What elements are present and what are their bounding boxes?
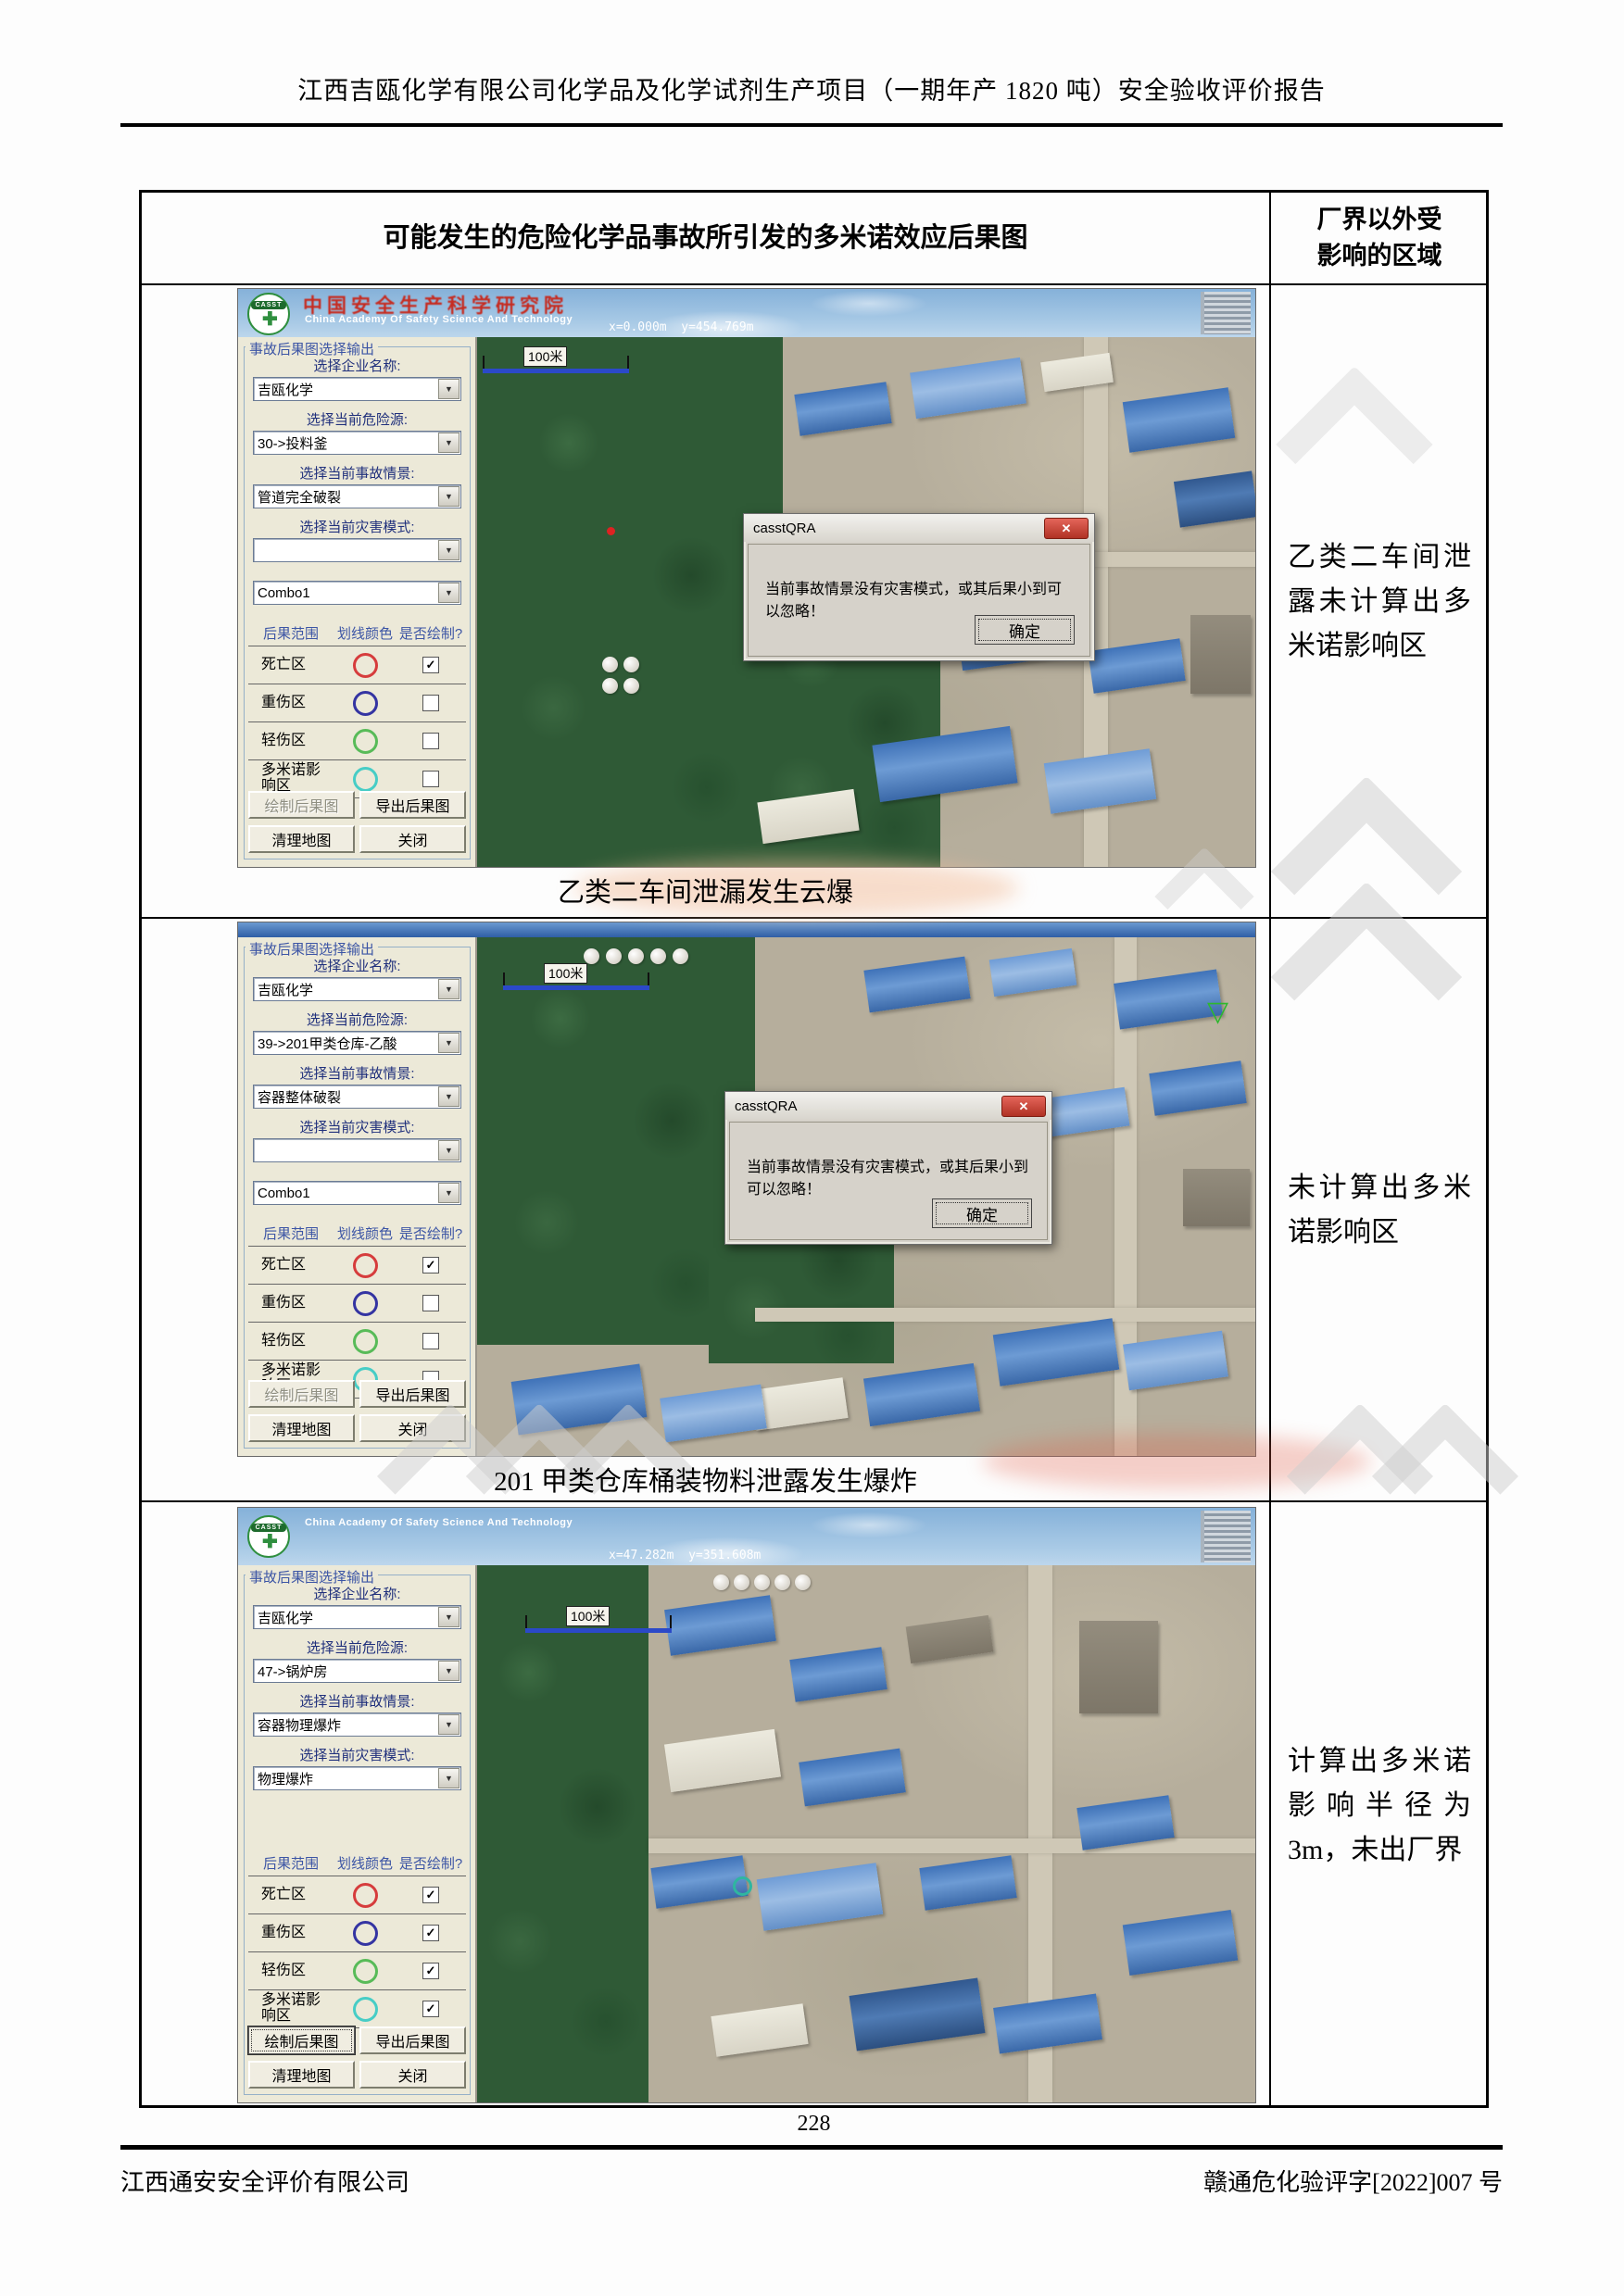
dialog-ok-button[interactable]: 确定	[932, 1198, 1032, 1228]
table-row-divider	[139, 917, 1489, 919]
zone-draw-checkbox[interactable]	[422, 695, 439, 711]
hazard-value: 30->投料釜	[254, 433, 437, 453]
disaster-mode-select[interactable]: ▼	[253, 1138, 461, 1162]
combo1-select[interactable]: Combo1 ▼	[253, 1181, 461, 1205]
zone-row-severe: 重伤区 ✓	[248, 1914, 466, 1952]
panel-group-title: 事故后果图选择输出	[245, 939, 378, 959]
zone-label: 多米诺影响区	[248, 1993, 334, 2025]
panel-group-frame: 事故后果图选择输出 选择企业名称: 吉瓯化学 ▼ 选择当前危险源: 30->投料…	[244, 346, 471, 859]
zone-row-severe: 重伤区	[248, 1285, 466, 1323]
zone-color-header: 划线颜色	[334, 1853, 397, 1873]
casst-logo-cross-icon: ✚	[262, 1533, 275, 1551]
dropdown-arrow-icon[interactable]: ▼	[438, 583, 460, 603]
export-result-button[interactable]: 导出后果图	[359, 2026, 466, 2054]
zone-color-ring	[353, 767, 378, 792]
zone-label: 重伤区	[248, 696, 334, 711]
dropdown-arrow-icon[interactable]: ▼	[438, 486, 460, 507]
affected-area-note-text: 计算出多米诺影响半径为3m，未出厂界	[1288, 1739, 1471, 1873]
dropdown-arrow-icon[interactable]: ▼	[438, 433, 460, 453]
zone-draw-checkbox[interactable]: ✓	[422, 1963, 439, 1979]
banner-org-name-en: China Academy Of Safety Science And Tech…	[305, 1517, 573, 1528]
hazard-label: 选择当前危险源:	[245, 1010, 470, 1029]
zone-color-ring	[353, 1959, 378, 1984]
scenario-value: 管道完全破裂	[254, 487, 437, 507]
zone-range-header: 后果范围	[248, 1853, 334, 1873]
table-row-divider	[139, 1500, 1489, 1502]
zone-color-ring	[353, 1253, 378, 1278]
enterprise-label: 选择企业名称:	[245, 956, 470, 975]
dropdown-arrow-icon[interactable]: ▼	[438, 540, 460, 560]
zone-table: 后果范围 划线颜色 是否绘制? 死亡区 ✓ 重伤区	[248, 620, 466, 798]
draw-result-button[interactable]: 绘制后果图	[248, 791, 355, 819]
affected-area-note-text: 未计算出多米诺影响区	[1288, 1166, 1471, 1255]
combo1-value: Combo1	[254, 1186, 437, 1201]
casst-logo-cross-icon: ✚	[262, 310, 275, 329]
scenario-value: 容器整体破裂	[254, 1087, 437, 1107]
hazard-value: 47->锅炉房	[254, 1662, 437, 1681]
scenario-select[interactable]: 容器整体破裂 ▼	[253, 1085, 461, 1109]
dialog-body: 当前事故情景没有灾害模式，或其后果小到可以忽略！ 确定	[748, 544, 1090, 657]
dialog-message: 当前事故情景没有灾害模式，或其后果小到可以忽略！	[749, 545, 1089, 621]
zone-color-ring	[353, 1291, 378, 1316]
output-selection-panel: 事故后果图选择输出 选择企业名称: 吉瓯化学 ▼ 选择当前危险源: 47->锅炉…	[238, 1565, 477, 2102]
zone-label: 轻伤区	[248, 1964, 334, 1979]
close-button[interactable]: 关闭	[359, 825, 466, 853]
table-header-consequence: 可能发生的危险化学品事故所引发的多米诺效应后果图	[142, 193, 1269, 283]
enterprise-select[interactable]: 吉瓯化学 ▼	[253, 977, 461, 1001]
hazard-select[interactable]: 47->锅炉房 ▼	[253, 1659, 461, 1683]
zone-draw-checkbox[interactable]: ✓	[422, 1887, 439, 1903]
zone-color-ring	[353, 653, 378, 678]
zone-color-ring	[353, 691, 378, 716]
dropdown-arrow-icon[interactable]: ▼	[438, 1183, 460, 1203]
zone-color-ring	[353, 1329, 378, 1354]
zone-draw-header: 是否绘制?	[397, 623, 465, 643]
page-number: 228	[139, 2112, 1489, 2137]
zone-label: 死亡区	[248, 1258, 334, 1273]
dropdown-arrow-icon[interactable]: ▼	[438, 1714, 460, 1735]
satellite-map-viewport[interactable]: 100米 casstQRA ✕ 当前事故情景没有灾害模式，或其后果小到可以忽略！…	[477, 337, 1255, 867]
map-scale-bar: 100米	[503, 963, 649, 990]
enterprise-select[interactable]: 吉瓯化学 ▼	[253, 1605, 461, 1629]
close-button[interactable]: 关闭	[359, 1414, 466, 1442]
figure-caption: 201 甲类仓库桶装物料泄露发生爆炸	[142, 1460, 1269, 1499]
zone-draw-checkbox[interactable]: ✓	[422, 2001, 439, 2017]
footer-rule	[120, 2145, 1503, 2150]
zone-draw-checkbox[interactable]	[422, 1333, 439, 1349]
panel-buttons: 绘制后果图 导出后果图 清理地图 关闭	[248, 791, 466, 853]
building-photo	[1201, 1511, 1251, 1562]
zone-label: 多米诺影响区	[248, 763, 334, 795]
scenario-select[interactable]: 容器物理爆炸 ▼	[253, 1713, 461, 1737]
zone-color-ring	[353, 1921, 378, 1946]
affected-area-note-text: 乙类二车间泄露未计算出多米诺影响区	[1288, 535, 1471, 669]
zone-draw-checkbox[interactable]: ✓	[422, 657, 439, 673]
dropdown-arrow-icon[interactable]: ▼	[438, 1607, 460, 1627]
zone-draw-header: 是否绘制?	[397, 1223, 465, 1243]
map-scale-label: 100米	[523, 346, 567, 367]
casst-logo-icon: CASST ✚	[247, 293, 290, 335]
zone-draw-checkbox[interactable]	[422, 733, 439, 749]
draw-result-button[interactable]: 绘制后果图	[248, 1380, 355, 1408]
enterprise-value: 吉瓯化学	[254, 380, 437, 399]
footer-company: 江西通安安全评价有限公司	[120, 2164, 409, 2198]
triangle-annotation: ▽	[1207, 998, 1228, 1026]
app-banner-strip	[238, 922, 1255, 937]
disaster-mode-select[interactable]: 物理爆炸 ▼	[253, 1766, 461, 1790]
zone-row-domino: 多米诺影响区 ✓	[248, 1990, 466, 2028]
dialog-close-button[interactable]: ✕	[1044, 518, 1089, 539]
hazard-point-marker	[607, 527, 615, 535]
table-header-affected-area: 厂界以外受影响的区域	[1273, 193, 1486, 283]
zone-color-ring	[353, 1883, 378, 1908]
zone-row-light: 轻伤区 ✓	[248, 1952, 466, 1990]
scenario-label: 选择当前事故情景:	[245, 1063, 470, 1083]
hazard-select[interactable]: 39->201甲类仓库-乙酸 ▼	[253, 1031, 461, 1055]
zone-row-severe: 重伤区	[248, 684, 466, 722]
zone-draw-checkbox[interactable]: ✓	[422, 1925, 439, 1941]
dialog-ok-button[interactable]: 确定	[975, 615, 1075, 645]
domino-radius-marker	[733, 1876, 752, 1896]
panel-group-frame: 事故后果图选择输出 选择企业名称: 吉瓯化学 ▼ 选择当前危险源: 47->锅炉…	[244, 1575, 471, 2095]
export-result-button[interactable]: 导出后果图	[359, 1380, 466, 1408]
affected-area-note: 乙类二车间泄露未计算出多米诺影响区	[1273, 289, 1486, 915]
clear-map-button[interactable]: 清理地图	[248, 2061, 355, 2089]
hazard-select[interactable]: 30->投料釜 ▼	[253, 431, 461, 455]
table-column-divider	[1269, 190, 1271, 2108]
satellite-map-viewport[interactable]: ▽ 100米 casstQRA ✕ 当前事故情景没有灾害模式，或其后果小到可以忽…	[477, 937, 1255, 1456]
scenario-label: 选择当前事故情景:	[245, 1691, 470, 1711]
map-road	[648, 1838, 1255, 1853]
map-road	[755, 1308, 1255, 1322]
hazard-label: 选择当前危险源:	[245, 1637, 470, 1657]
dialog-title: casstQRA	[735, 1098, 798, 1114]
zone-range-header: 后果范围	[248, 1223, 334, 1243]
disaster-mode-value: 物理爆炸	[254, 1769, 437, 1788]
report-header-title: 江西吉瓯化学有限公司化学品及化学试剂生产项目（一期年产 1820 吨）安全验收评…	[120, 70, 1503, 107]
panel-group-title: 事故后果图选择输出	[245, 339, 378, 358]
zone-row-death: 死亡区 ✓	[248, 1876, 466, 1914]
casst-logo-text: CASST	[251, 301, 286, 309]
dropdown-arrow-icon[interactable]: ▼	[438, 1086, 460, 1107]
panel-buttons: 绘制后果图 导出后果图 清理地图 关闭	[248, 2026, 466, 2089]
zone-label: 轻伤区	[248, 734, 334, 749]
zone-table-header: 后果范围 划线颜色 是否绘制?	[248, 1850, 466, 1876]
enterprise-label: 选择企业名称:	[245, 356, 470, 375]
zone-table: 后果范围 划线颜色 是否绘制? 死亡区 ✓ 重伤区	[248, 1220, 466, 1399]
zone-draw-header: 是否绘制?	[397, 1853, 465, 1873]
hazard-value: 39->201甲类仓库-乙酸	[254, 1034, 437, 1053]
clear-map-button[interactable]: 清理地图	[248, 1414, 355, 1442]
close-button[interactable]: 关闭	[359, 2061, 466, 2089]
dropdown-arrow-icon[interactable]: ▼	[438, 979, 460, 999]
table-row-divider	[139, 283, 1489, 285]
combo1-select[interactable]: Combo1 ▼	[253, 581, 461, 605]
combo1-value: Combo1	[254, 585, 437, 601]
dropdown-arrow-icon[interactable]: ▼	[438, 1661, 460, 1681]
panel-group-title: 事故后果图选择输出	[245, 1567, 378, 1587]
map-scale-bar: 100米	[525, 1606, 672, 1633]
footer-doc-number: 赣通危化验评字[2022]007 号	[1203, 2164, 1503, 2198]
forest-area	[477, 337, 783, 867]
affected-area-note: 计算出多米诺影响半径为3m，未出厂界	[1273, 1508, 1486, 2104]
disaster-mode-label: 选择当前灾害模式:	[245, 1117, 470, 1136]
cursor-coordinates: x=0.000m y=454.769m	[609, 320, 754, 334]
banner-org-name-en: China Academy Of Safety Science And Tech…	[305, 314, 573, 325]
forest-area	[477, 1565, 648, 2102]
affected-area-note: 未计算出多米诺影响区	[1273, 922, 1486, 1499]
output-selection-panel: 事故后果图选择输出 选择企业名称: 吉瓯化学 ▼ 选择当前危险源: 39->20…	[238, 937, 477, 1456]
dropdown-arrow-icon[interactable]: ▼	[438, 1033, 460, 1053]
figure-caption: 乙类二车间泄漏发生云爆	[142, 871, 1269, 910]
dialog-body: 当前事故情景没有灾害模式，或其后果小到可以忽略！ 确定	[729, 1122, 1048, 1240]
dropdown-arrow-icon[interactable]: ▼	[438, 379, 460, 399]
screenshot-scenario-3: CASST ✚ China Academy Of Safety Science …	[238, 1508, 1255, 2102]
app-banner: CASST ✚ China Academy Of Safety Science …	[238, 1508, 1255, 1565]
dialog-titlebar: casstQRA ✕	[744, 514, 1094, 542]
scenario-select[interactable]: 管道完全破裂 ▼	[253, 484, 461, 508]
casstqra-dialog: casstQRA ✕ 当前事故情景没有灾害模式，或其后果小到可以忽略！ 确定	[743, 513, 1095, 661]
enterprise-value: 吉瓯化学	[254, 980, 437, 999]
cursor-coordinates: x=47.282m y=351.608m	[609, 1549, 761, 1562]
zone-table: 后果范围 划线颜色 是否绘制? 死亡区 ✓ 重伤区 ✓	[248, 1850, 466, 2028]
scenario-value: 容器物理爆炸	[254, 1715, 437, 1735]
zone-draw-checkbox[interactable]: ✓	[422, 1257, 439, 1273]
zone-color-ring	[353, 1997, 378, 2022]
enterprise-select[interactable]: 吉瓯化学 ▼	[253, 377, 461, 401]
dialog-message: 当前事故情景没有灾害模式，或其后果小到可以忽略！	[730, 1123, 1047, 1198]
zone-table-header: 后果范围 划线颜色 是否绘制?	[248, 1220, 466, 1247]
zone-range-header: 后果范围	[248, 623, 334, 643]
zone-label: 死亡区	[248, 658, 334, 673]
enterprise-label: 选择企业名称:	[245, 1584, 470, 1603]
clear-map-button[interactable]: 清理地图	[248, 825, 355, 853]
table-header-affected-area-text: 厂界以外受影响的区域	[1310, 202, 1449, 274]
casstqra-dialog: casstQRA ✕ 当前事故情景没有灾害模式，或其后果小到可以忽略！ 确定	[724, 1091, 1052, 1245]
scenario-label: 选择当前事故情景:	[245, 463, 470, 483]
map-scale-label: 100米	[544, 963, 587, 984]
zone-label: 死亡区	[248, 1888, 334, 1903]
satellite-map-viewport[interactable]: 100米	[477, 1565, 1255, 2102]
dropdown-arrow-icon[interactable]: ▼	[438, 1768, 460, 1788]
zone-table-header: 后果范围 划线颜色 是否绘制?	[248, 620, 466, 646]
dialog-title: casstQRA	[753, 521, 816, 536]
screenshot-scenario-2: 事故后果图选择输出 选择企业名称: 吉瓯化学 ▼ 选择当前危险源: 39->20…	[238, 922, 1255, 1456]
enterprise-value: 吉瓯化学	[254, 1608, 437, 1627]
disaster-mode-label: 选择当前灾害模式:	[245, 517, 470, 536]
zone-row-light: 轻伤区	[248, 1323, 466, 1361]
zone-label: 重伤区	[248, 1296, 334, 1311]
header-rule	[120, 123, 1503, 127]
map-scale-label: 100米	[566, 1606, 610, 1626]
zone-label: 重伤区	[248, 1926, 334, 1941]
screenshot-scenario-1: CASST ✚ 中国安全生产科学研究院 China Academy Of Saf…	[238, 289, 1255, 867]
disaster-mode-select[interactable]: ▼	[253, 538, 461, 562]
zone-row-death: 死亡区 ✓	[248, 646, 466, 684]
app-banner: CASST ✚ 中国安全生产科学研究院 China Academy Of Saf…	[238, 289, 1255, 337]
panel-group-frame: 事故后果图选择输出 选择企业名称: 吉瓯化学 ▼ 选择当前危险源: 39->20…	[244, 947, 471, 1449]
export-result-button[interactable]: 导出后果图	[359, 791, 466, 819]
zone-label: 轻伤区	[248, 1334, 334, 1349]
map-scale-bar: 100米	[483, 346, 629, 373]
zone-row-light: 轻伤区	[248, 722, 466, 760]
casst-logo-text: CASST	[251, 1524, 286, 1532]
draw-result-button[interactable]: 绘制后果图	[248, 2026, 355, 2054]
zone-color-header: 划线颜色	[334, 1223, 397, 1243]
hazard-label: 选择当前危险源:	[245, 409, 470, 429]
report-page: 江西吉瓯化学有限公司化学品及化学试剂生产项目（一期年产 1820 吨）安全验收评…	[0, 0, 1624, 2296]
casst-logo-icon: CASST ✚	[247, 1515, 290, 1558]
building-photo	[1201, 292, 1251, 334]
panel-buttons: 绘制后果图 导出后果图 清理地图 关闭	[248, 1380, 466, 1442]
zone-draw-checkbox[interactable]	[422, 1295, 439, 1311]
dropdown-arrow-icon[interactable]: ▼	[438, 1140, 460, 1161]
output-selection-panel: 事故后果图选择输出 选择企业名称: 吉瓯化学 ▼ 选择当前危险源: 30->投料…	[238, 337, 477, 867]
zone-color-ring	[353, 729, 378, 754]
dialog-titlebar: casstQRA ✕	[725, 1092, 1051, 1120]
disaster-mode-label: 选择当前灾害模式:	[245, 1745, 470, 1764]
zone-row-death: 死亡区 ✓	[248, 1247, 466, 1285]
dialog-close-button[interactable]: ✕	[1001, 1096, 1046, 1117]
zone-draw-checkbox[interactable]	[422, 771, 439, 787]
zone-color-header: 划线颜色	[334, 623, 397, 643]
